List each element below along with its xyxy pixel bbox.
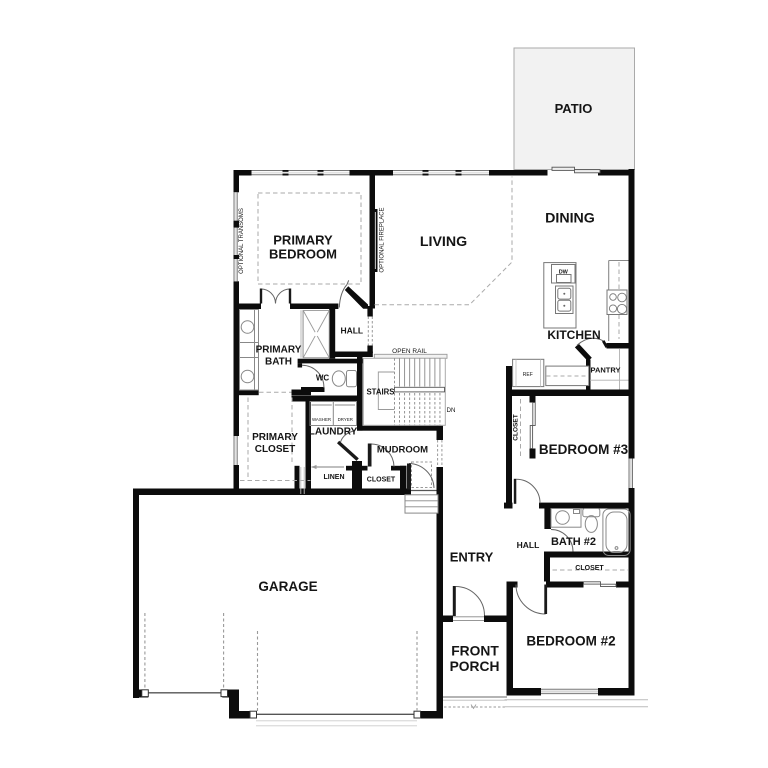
svg-text:CLOSET: CLOSET bbox=[513, 414, 520, 440]
svg-text:CLOSET: CLOSET bbox=[575, 565, 604, 572]
svg-text:CLOSET: CLOSET bbox=[367, 477, 396, 484]
svg-text:GARAGE: GARAGE bbox=[258, 579, 317, 594]
svg-text:LINEN: LINEN bbox=[324, 474, 345, 481]
svg-text:REF: REF bbox=[523, 372, 533, 378]
svg-text:CLOSET: CLOSET bbox=[255, 444, 296, 455]
svg-text:PORCH: PORCH bbox=[450, 659, 500, 674]
svg-text:BEDROOM #3: BEDROOM #3 bbox=[539, 442, 629, 457]
svg-text:OPTIONAL TRANSOMS: OPTIONAL TRANSOMS bbox=[239, 208, 245, 274]
svg-text:STAIRS: STAIRS bbox=[366, 387, 394, 396]
svg-text:OPTIONAL FIREPLACE: OPTIONAL FIREPLACE bbox=[380, 207, 386, 272]
svg-text:PANTRY: PANTRY bbox=[591, 366, 621, 375]
svg-text:PATIO: PATIO bbox=[555, 101, 593, 116]
svg-text:MUDROOM: MUDROOM bbox=[377, 444, 428, 455]
svg-text:BATH #2: BATH #2 bbox=[551, 536, 596, 548]
svg-text:LIVING: LIVING bbox=[420, 234, 467, 250]
svg-text:HALL: HALL bbox=[517, 540, 540, 550]
svg-text:LAUNDRY: LAUNDRY bbox=[309, 427, 358, 438]
svg-text:WASHER: WASHER bbox=[312, 417, 331, 422]
svg-text:KITCHEN: KITCHEN bbox=[547, 328, 600, 342]
svg-text:BATH: BATH bbox=[265, 357, 292, 368]
svg-text:DINING: DINING bbox=[545, 211, 595, 227]
svg-text:ENTRY: ENTRY bbox=[450, 549, 494, 564]
svg-text:OPEN RAIL: OPEN RAIL bbox=[392, 348, 427, 355]
svg-text:BEDROOM #2: BEDROOM #2 bbox=[526, 634, 615, 649]
svg-text:WC: WC bbox=[316, 374, 330, 383]
svg-text:PRIMARY: PRIMARY bbox=[256, 345, 302, 356]
svg-text:HALL: HALL bbox=[340, 325, 363, 335]
svg-text:DRYER: DRYER bbox=[338, 417, 353, 422]
svg-text:BEDROOM: BEDROOM bbox=[269, 247, 337, 262]
svg-text:DW: DW bbox=[559, 270, 569, 276]
svg-text:PRIMARY: PRIMARY bbox=[252, 432, 298, 443]
svg-text:FRONT: FRONT bbox=[451, 643, 499, 658]
svg-text:PRIMARY: PRIMARY bbox=[273, 232, 333, 247]
svg-text:DN: DN bbox=[447, 407, 456, 414]
